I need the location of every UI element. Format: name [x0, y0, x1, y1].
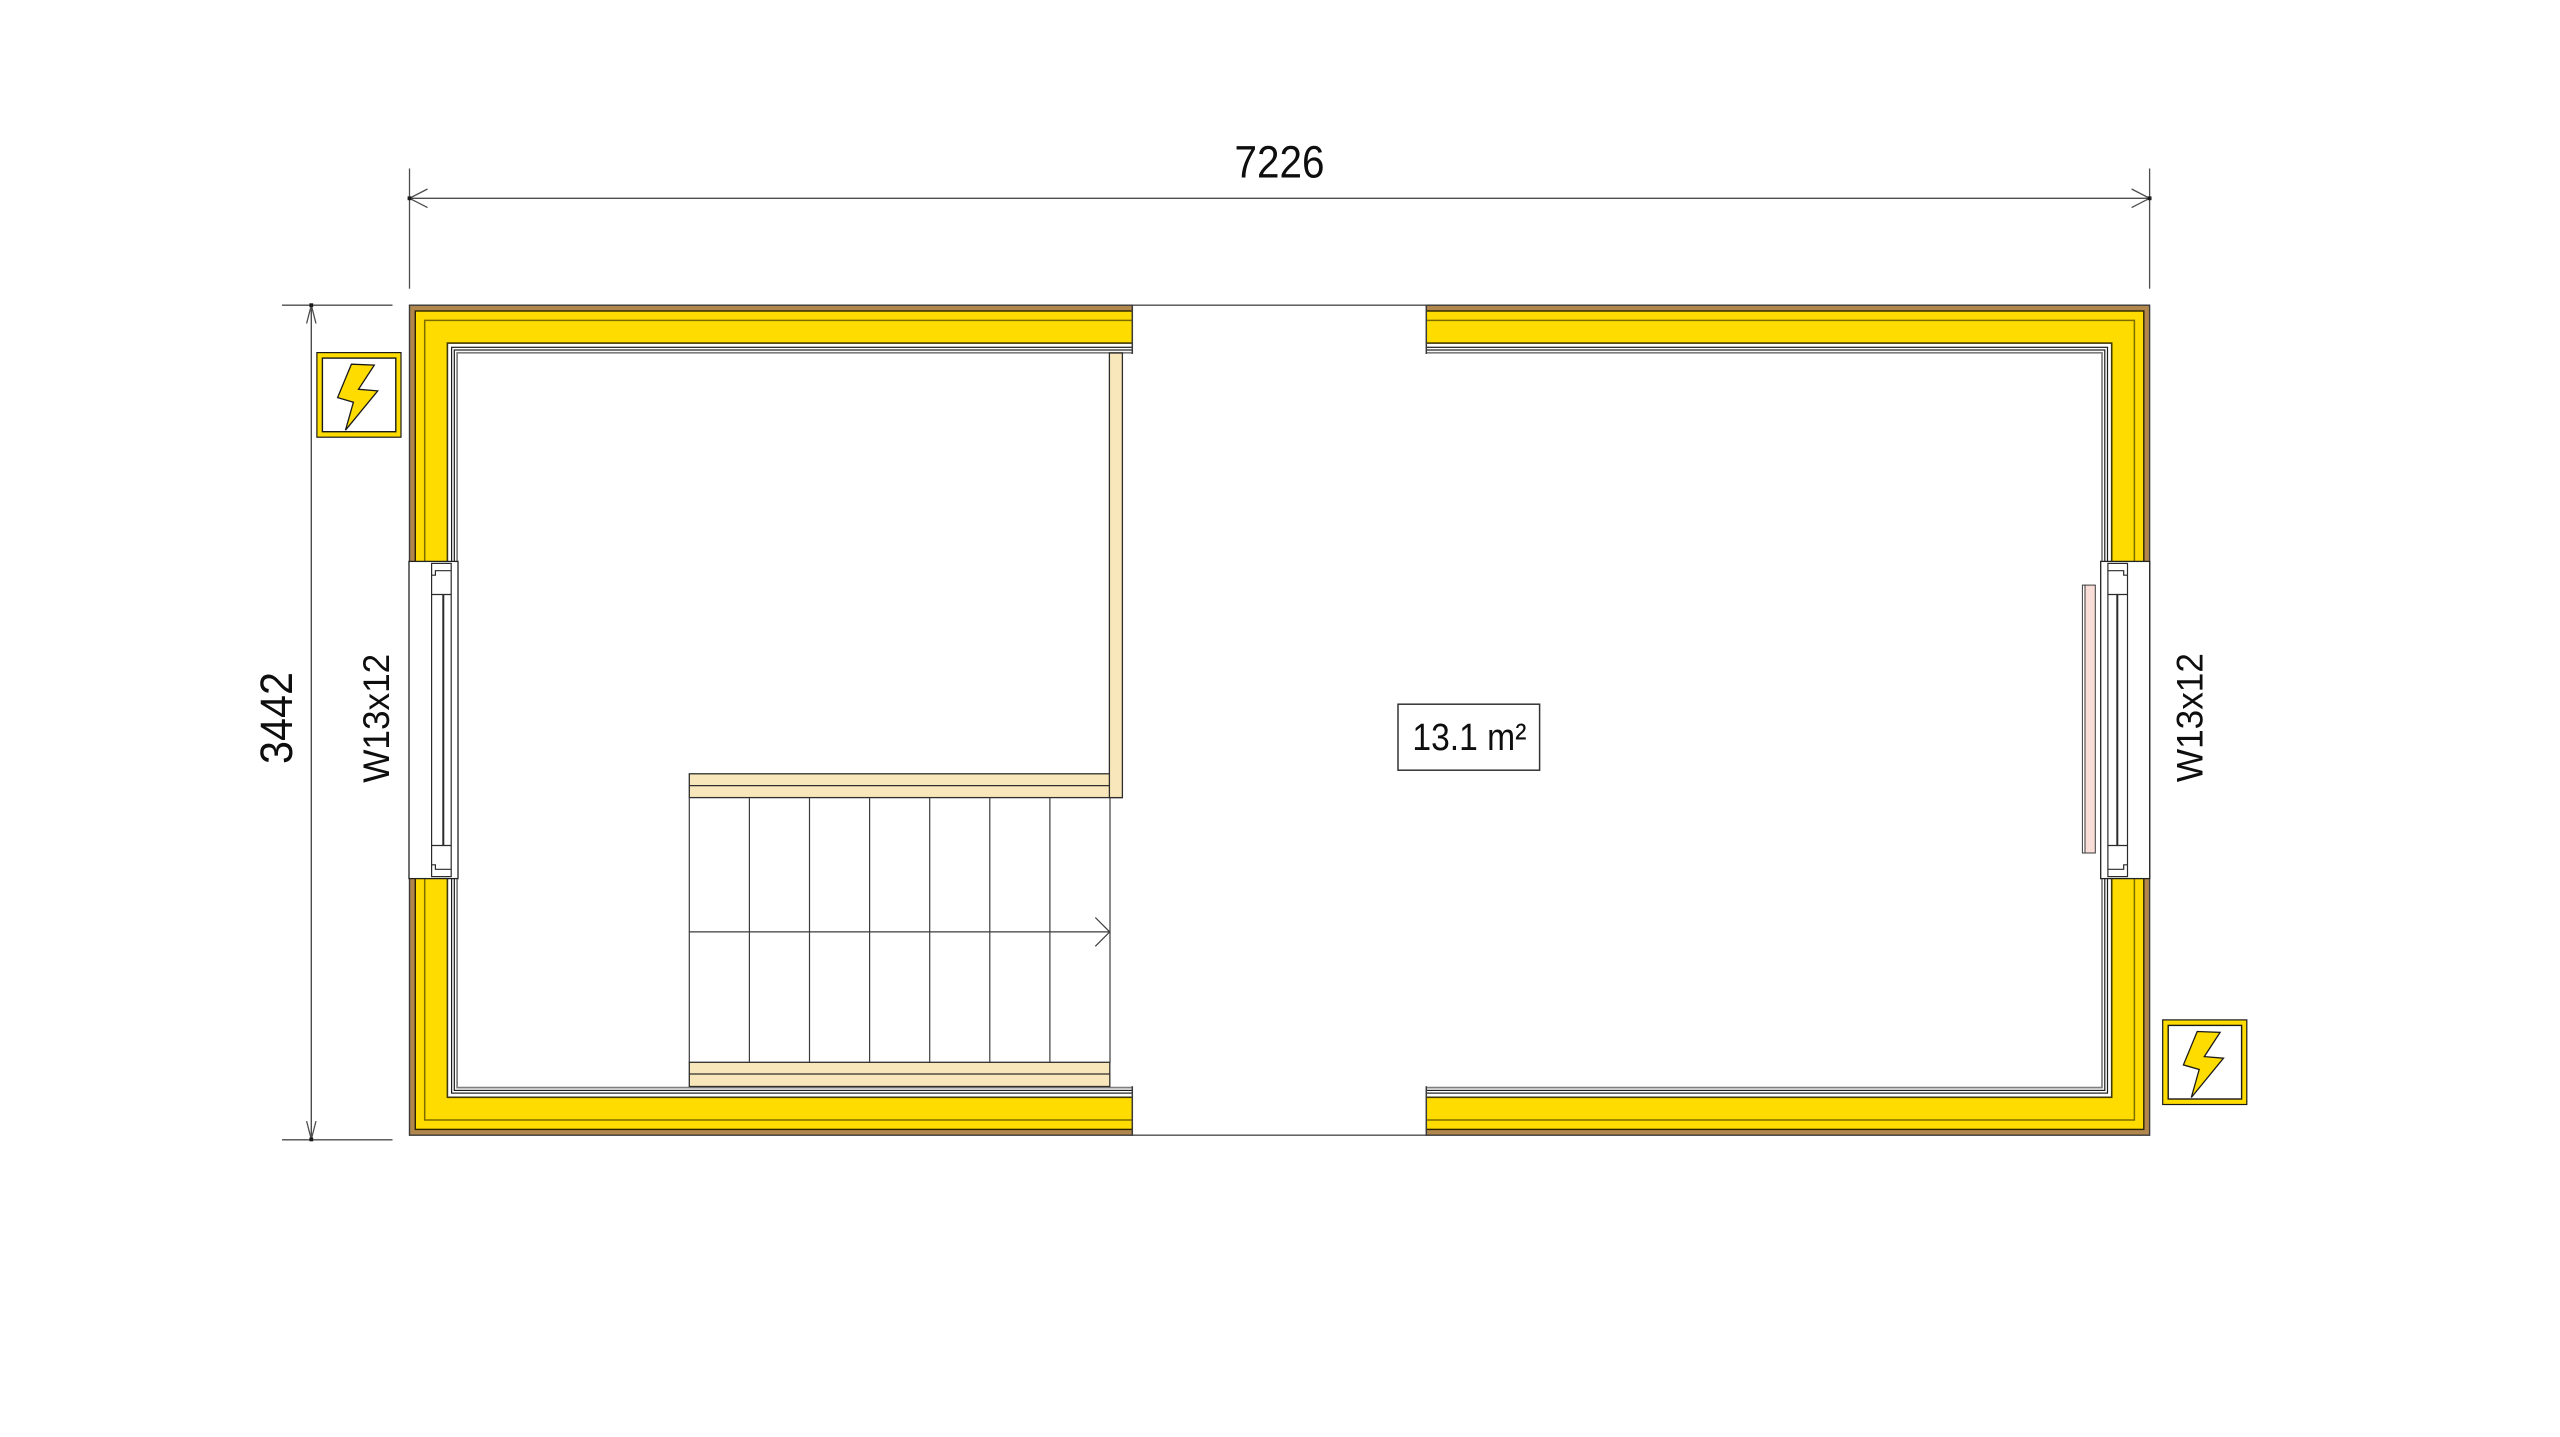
svg-text:13.1 m²: 13.1 m² — [1412, 717, 1526, 759]
svg-text:W13x12: W13x12 — [2170, 653, 2211, 782]
svg-text:W13x12: W13x12 — [356, 654, 397, 783]
svg-text:3442: 3442 — [251, 672, 302, 764]
svg-text:7226: 7226 — [1235, 136, 1325, 187]
